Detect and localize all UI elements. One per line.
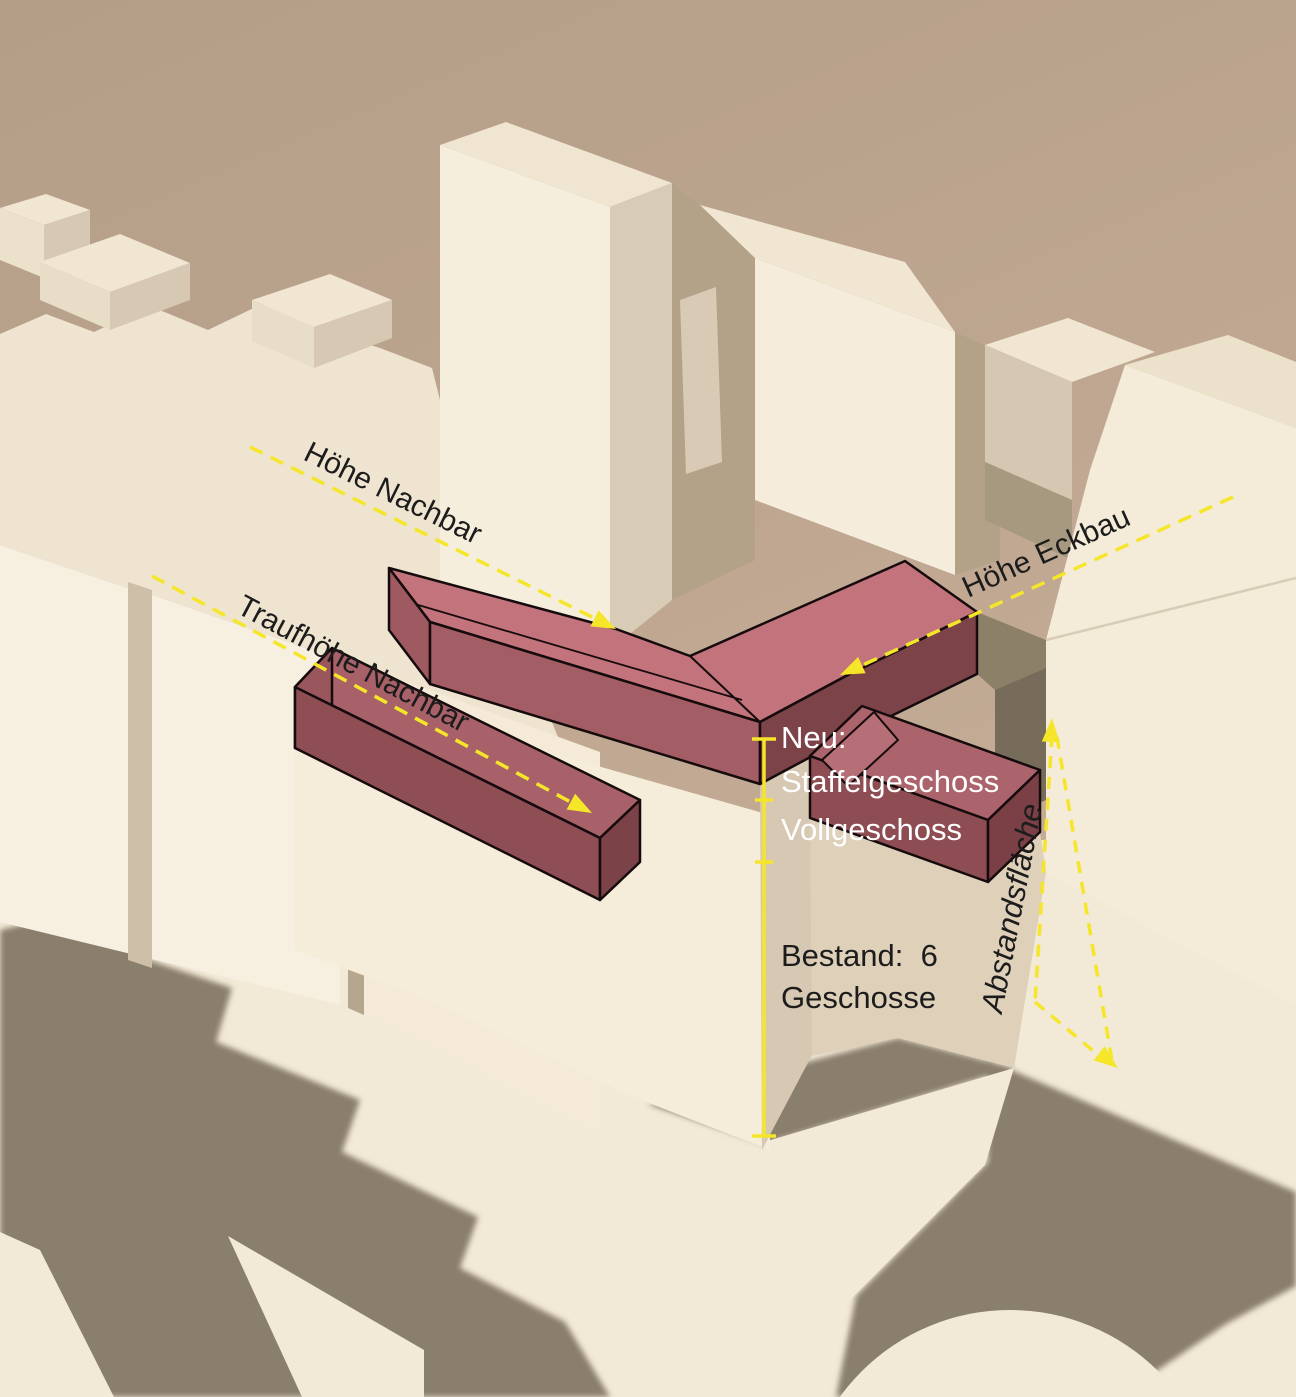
label-staffelgeschoss: Staffelgeschoss [781,764,999,799]
label-bestand-line1: Bestand: 6 [781,938,938,973]
scene-svg: Höhe Nachbar Traufhöhe Nachbar Höhe Eckb… [0,0,1296,1397]
label-neu: Neu: [781,720,846,755]
roof-fin-1 [680,287,722,474]
label-bestand-line2: Geschosse [781,980,936,1015]
massing-diagram: Höhe Nachbar Traufhöhe Nachbar Höhe Eckb… [0,0,1296,1397]
label-vollgeschoss: Vollgeschoss [781,812,962,847]
facade-recess [128,582,152,968]
tall-slab-side [610,183,672,650]
